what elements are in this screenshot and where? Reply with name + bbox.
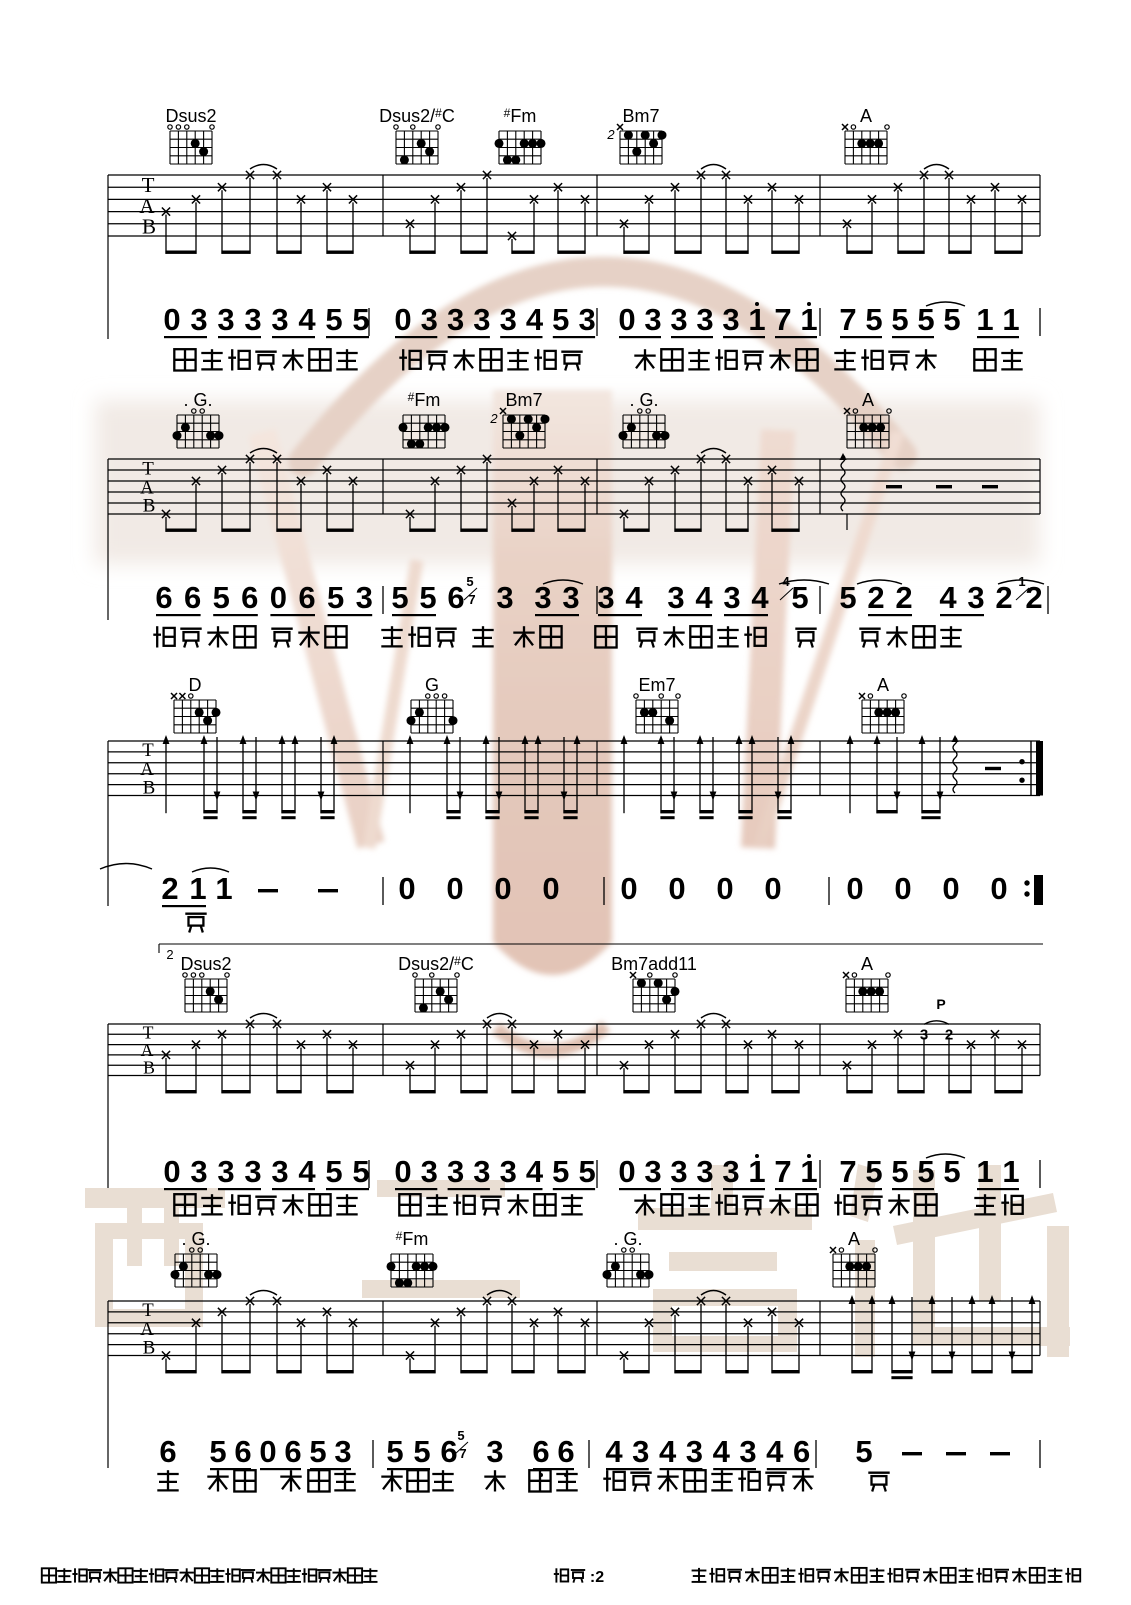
svg-text:Dsus2/#C: Dsus2/#C (398, 954, 474, 974)
svg-text:0: 0 (620, 871, 637, 906)
svg-text:1: 1 (748, 302, 765, 337)
svg-text:3: 3 (920, 1026, 928, 1043)
svg-text:3: 3 (271, 1154, 288, 1189)
svg-text:3: 3 (670, 302, 687, 337)
svg-text:5: 5 (865, 1154, 882, 1189)
svg-text:3: 3 (500, 1154, 517, 1189)
svg-text:3: 3 (578, 302, 595, 337)
svg-text:3: 3 (447, 302, 464, 337)
svg-text:5: 5 (943, 302, 960, 337)
svg-text:5: 5 (457, 1428, 464, 1443)
svg-text:5: 5 (352, 302, 369, 337)
svg-text:1: 1 (976, 1154, 993, 1189)
svg-text:5: 5 (209, 1434, 226, 1469)
svg-text:7: 7 (839, 1154, 856, 1189)
svg-text:6: 6 (298, 580, 315, 615)
svg-text:A: A (877, 675, 889, 695)
svg-text:Dsus2: Dsus2 (165, 106, 216, 126)
svg-text:3: 3 (667, 580, 684, 615)
svg-text:2: 2 (945, 1026, 953, 1043)
svg-text:2: 2 (166, 947, 173, 962)
svg-text:7: 7 (468, 592, 475, 607)
svg-text:3: 3 (500, 302, 517, 337)
svg-text:3: 3 (244, 1154, 261, 1189)
svg-text:4: 4 (298, 1154, 316, 1189)
svg-text:3: 3 (723, 580, 740, 615)
svg-text:5: 5 (325, 302, 342, 337)
svg-text:2: 2 (161, 871, 178, 906)
svg-text:2: 2 (867, 580, 884, 615)
svg-text:0: 0 (398, 871, 415, 906)
svg-text:5: 5 (419, 580, 436, 615)
svg-text:B: B (143, 496, 156, 517)
svg-text:6: 6 (557, 1434, 574, 1469)
svg-text:4: 4 (298, 302, 316, 337)
svg-text:0: 0 (716, 871, 733, 906)
svg-text:0: 0 (446, 871, 463, 906)
svg-text:6: 6 (532, 1434, 549, 1469)
svg-text:P: P (936, 996, 945, 1012)
svg-text:A: A (862, 390, 874, 410)
svg-text:D: D (189, 675, 202, 695)
svg-text:2: 2 (895, 580, 912, 615)
svg-text:0: 0 (894, 871, 911, 906)
svg-text:3: 3 (686, 1434, 703, 1469)
svg-text:5: 5 (855, 1434, 872, 1469)
svg-text:B: B (142, 215, 156, 239)
svg-text:5: 5 (552, 1154, 569, 1189)
svg-text:4: 4 (659, 1434, 677, 1469)
svg-text:. G.: . G. (183, 390, 212, 410)
svg-text:5: 5 (839, 580, 856, 615)
svg-text:1: 1 (1002, 1154, 1019, 1189)
svg-text:3: 3 (271, 302, 288, 337)
svg-text:3: 3 (597, 580, 614, 615)
svg-text:3: 3 (696, 1154, 713, 1189)
svg-text:3: 3 (421, 1154, 438, 1189)
svg-text:3: 3 (967, 580, 984, 615)
svg-text:0: 0 (163, 302, 180, 337)
svg-text:0: 0 (394, 302, 411, 337)
svg-text:1: 1 (800, 1154, 817, 1189)
svg-text:B: B (143, 1337, 156, 1358)
svg-text:5: 5 (552, 302, 569, 337)
svg-text:B: B (143, 777, 156, 798)
svg-text:3: 3 (644, 302, 661, 337)
svg-text:Bm7: Bm7 (622, 106, 659, 126)
svg-text:4: 4 (766, 1434, 784, 1469)
svg-text:7: 7 (774, 302, 791, 337)
svg-text::2: :2 (590, 1569, 604, 1586)
svg-text:Bm7: Bm7 (505, 390, 542, 410)
svg-text:0: 0 (764, 871, 781, 906)
svg-text:3: 3 (356, 580, 373, 615)
svg-text:3: 3 (190, 302, 207, 337)
svg-text:6: 6 (155, 580, 172, 615)
svg-text:5: 5 (466, 574, 473, 589)
svg-text:6: 6 (184, 580, 201, 615)
svg-text:1: 1 (1002, 302, 1019, 337)
svg-text:5: 5 (352, 1154, 369, 1189)
svg-text:5: 5 (891, 1154, 908, 1189)
svg-text:4: 4 (939, 580, 957, 615)
svg-text:5: 5 (391, 580, 408, 615)
svg-text:0: 0 (270, 580, 287, 615)
svg-text:5: 5 (213, 580, 230, 615)
svg-text:. G.: . G. (613, 1229, 642, 1249)
svg-text:0: 0 (942, 871, 959, 906)
svg-text:5: 5 (309, 1434, 326, 1469)
svg-text:0: 0 (542, 871, 559, 906)
svg-text:0: 0 (394, 1154, 411, 1189)
svg-text:5: 5 (327, 580, 344, 615)
svg-text:1: 1 (748, 1154, 765, 1189)
svg-text:Bm7add11: Bm7add11 (611, 954, 697, 974)
svg-text:3: 3 (534, 580, 551, 615)
svg-text:5: 5 (325, 1154, 342, 1189)
svg-text:0: 0 (259, 1434, 276, 1469)
svg-text:4: 4 (526, 302, 544, 337)
svg-text:3: 3 (244, 302, 261, 337)
svg-text:5: 5 (865, 302, 882, 337)
svg-text:Dsus2: Dsus2 (180, 954, 231, 974)
svg-text:4: 4 (526, 1154, 544, 1189)
svg-text:3: 3 (632, 1434, 649, 1469)
svg-text:2: 2 (1025, 580, 1042, 615)
svg-text:A: A (860, 106, 872, 126)
svg-text:2: 2 (995, 580, 1012, 615)
svg-text:A: A (861, 954, 873, 974)
svg-text:4: 4 (695, 580, 713, 615)
svg-text:G: G (425, 675, 439, 695)
svg-text:6: 6 (440, 1434, 457, 1469)
svg-text:3: 3 (421, 302, 438, 337)
svg-text:0: 0 (163, 1154, 180, 1189)
svg-text:0: 0 (990, 871, 1007, 906)
svg-text:3: 3 (217, 1154, 234, 1189)
svg-text:5: 5 (943, 1154, 960, 1189)
svg-text:4: 4 (713, 1434, 731, 1469)
svg-text:1: 1 (189, 871, 206, 906)
svg-text:5: 5 (917, 302, 934, 337)
svg-text:5: 5 (791, 580, 808, 615)
svg-text:6: 6 (284, 1434, 301, 1469)
svg-text:3: 3 (473, 1154, 490, 1189)
svg-text:3: 3 (722, 302, 739, 337)
svg-text:7: 7 (839, 302, 856, 337)
svg-text:4: 4 (751, 580, 769, 615)
svg-text:T: T (142, 458, 154, 479)
svg-text:0: 0 (668, 871, 685, 906)
svg-text:6: 6 (447, 580, 464, 615)
svg-text:2: 2 (606, 127, 615, 142)
svg-text:1: 1 (976, 302, 993, 337)
svg-text:3: 3 (190, 1154, 207, 1189)
svg-text:5: 5 (891, 302, 908, 337)
svg-text:0: 0 (846, 871, 863, 906)
svg-text:3: 3 (644, 1154, 661, 1189)
svg-text:3: 3 (496, 580, 513, 615)
svg-text:7: 7 (774, 1154, 791, 1189)
svg-text:3: 3 (473, 302, 490, 337)
svg-text:2: 2 (489, 411, 498, 426)
svg-text:5: 5 (917, 1154, 934, 1189)
svg-text:. G.: . G. (181, 1229, 210, 1249)
svg-text:7: 7 (459, 1446, 466, 1461)
svg-text:5: 5 (413, 1434, 430, 1469)
svg-text:0: 0 (618, 1154, 635, 1189)
svg-text:4: 4 (625, 580, 643, 615)
svg-text:0: 0 (494, 871, 511, 906)
svg-text:3: 3 (670, 1154, 687, 1189)
svg-text:3: 3 (447, 1154, 464, 1189)
svg-text:6: 6 (234, 1434, 251, 1469)
svg-text:3: 3 (486, 1434, 503, 1469)
svg-text:3: 3 (562, 580, 579, 615)
svg-text:5: 5 (578, 1154, 595, 1189)
svg-text:3: 3 (696, 302, 713, 337)
svg-text:Em7: Em7 (638, 675, 675, 695)
svg-text:6: 6 (793, 1434, 810, 1469)
svg-text:6: 6 (159, 1434, 176, 1469)
svg-text:3: 3 (722, 1154, 739, 1189)
svg-text:B: B (143, 1057, 155, 1077)
svg-text:3: 3 (217, 302, 234, 337)
svg-text:5: 5 (386, 1434, 403, 1469)
svg-text:A: A (848, 1229, 860, 1249)
svg-text:1: 1 (215, 871, 232, 906)
svg-text:6: 6 (241, 580, 258, 615)
svg-text:Dsus2/#C: Dsus2/#C (379, 106, 455, 126)
svg-text:. G.: . G. (629, 390, 658, 410)
svg-text:3: 3 (334, 1434, 351, 1469)
svg-text:1: 1 (800, 302, 817, 337)
svg-text:0: 0 (618, 302, 635, 337)
svg-text:3: 3 (739, 1434, 756, 1469)
svg-text:4: 4 (605, 1434, 623, 1469)
